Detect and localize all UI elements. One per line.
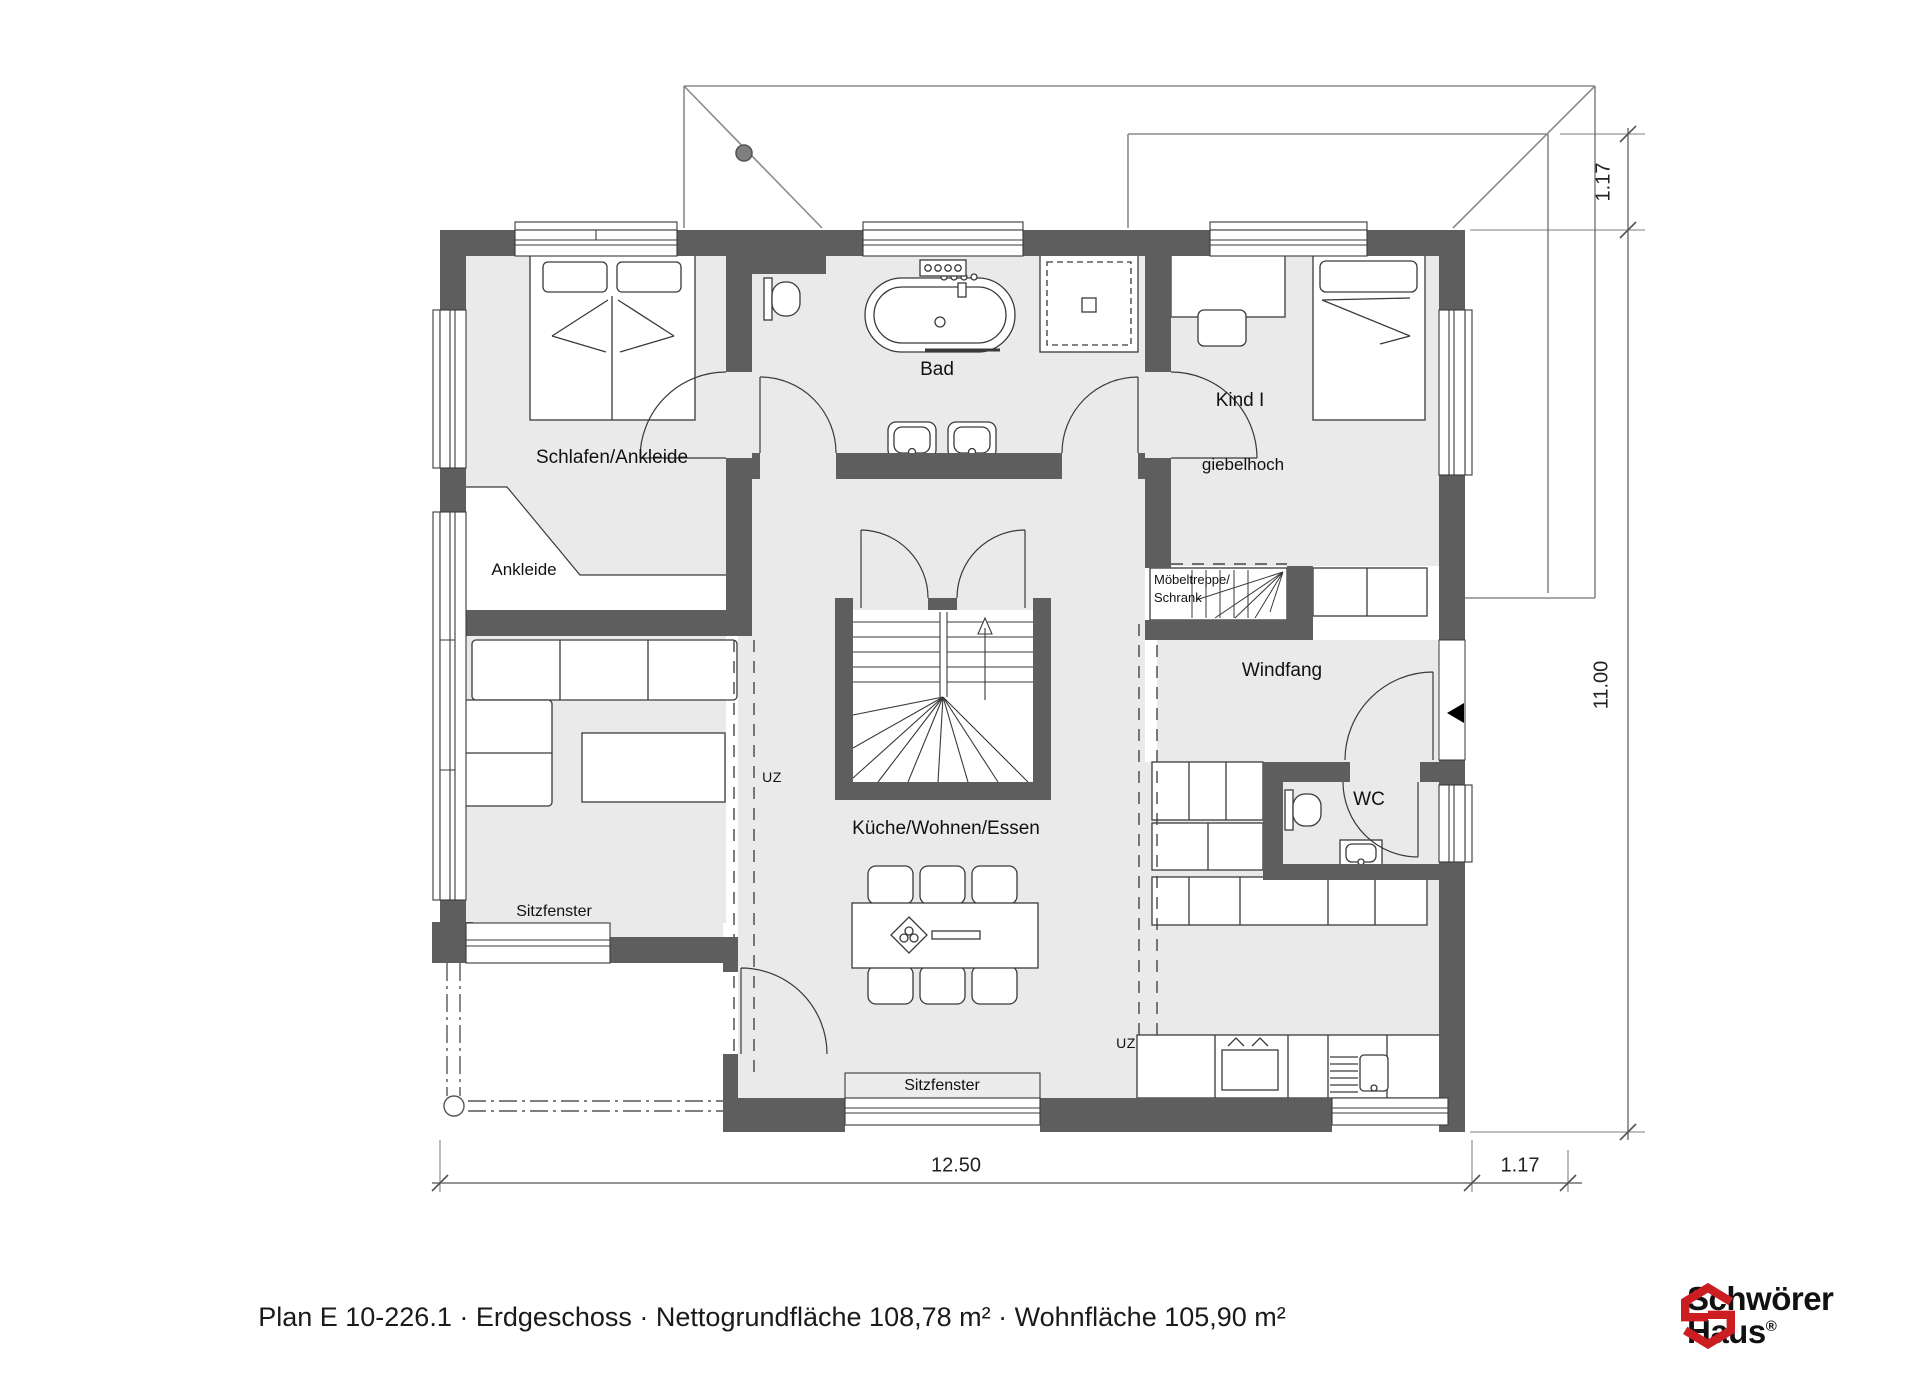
kind-bed: [1313, 255, 1425, 420]
room-label-moebeltreppe-1: Möbeltreppe/: [1154, 572, 1230, 587]
wardrobe: [1313, 568, 1427, 616]
roof-point-marker: [736, 145, 752, 161]
hall-cabinets: [1152, 762, 1263, 870]
dim-bottom-width: 12.50: [931, 1155, 981, 1178]
wc-toilet: [1285, 790, 1321, 830]
bathtub: [865, 274, 1015, 352]
kitchen-counter-top: [1152, 877, 1427, 925]
floorplan-drawing: [0, 0, 1920, 1400]
room-label-windfang: Windfang: [1242, 660, 1322, 682]
toilet: [764, 278, 800, 320]
kitchen-counter-bottom: [1137, 1035, 1448, 1098]
label-sitzfenster-bottom: Sitzfenster: [904, 1077, 980, 1095]
cooktop: [1222, 1050, 1278, 1090]
coffee-table: [582, 733, 725, 802]
registered-mark: ®: [1766, 1318, 1777, 1335]
schwoererhaus-logo: Schwörer Haus®: [1678, 1282, 1833, 1348]
floorplan-page: Schlafen/Ankleide Ankleide Bad Kind I gi…: [0, 0, 1920, 1400]
dim-bottom-overhang: 1.17: [1501, 1155, 1540, 1178]
room-label-wc: WC: [1353, 789, 1385, 811]
room-label-moebeltreppe-2: Schrank: [1154, 590, 1202, 605]
bad-shelf: [920, 260, 966, 276]
room-label-giebelhoch: giebelhoch: [1202, 455, 1284, 475]
dim-right-height: 11.00: [1591, 661, 1614, 710]
dining-table-group: [852, 866, 1038, 1004]
bay-window: [466, 923, 610, 963]
room-label-schlafen: Schlafen/Ankleide: [536, 447, 688, 469]
room-label-kind: Kind I: [1216, 390, 1265, 412]
schwoerer-hex-s-icon: [1678, 1282, 1738, 1350]
terrace-post-icon: [444, 1096, 464, 1116]
label-uz-living: UZ: [762, 769, 782, 785]
dim-right-overhang: 1.17: [1593, 163, 1616, 202]
room-label-kueche: Küche/Wohnen/Essen: [852, 818, 1040, 840]
room-label-bad: Bad: [920, 359, 954, 381]
double-bed: [530, 253, 695, 420]
label-sitzfenster-left: Sitzfenster: [516, 903, 592, 921]
label-uz-kitchen: UZ: [1116, 1035, 1136, 1051]
shower: [1040, 255, 1138, 352]
room-label-ankleide: Ankleide: [491, 560, 556, 580]
plan-title: Plan E 10-226.1 · Erdgeschoss · Nettogru…: [0, 1302, 1544, 1333]
